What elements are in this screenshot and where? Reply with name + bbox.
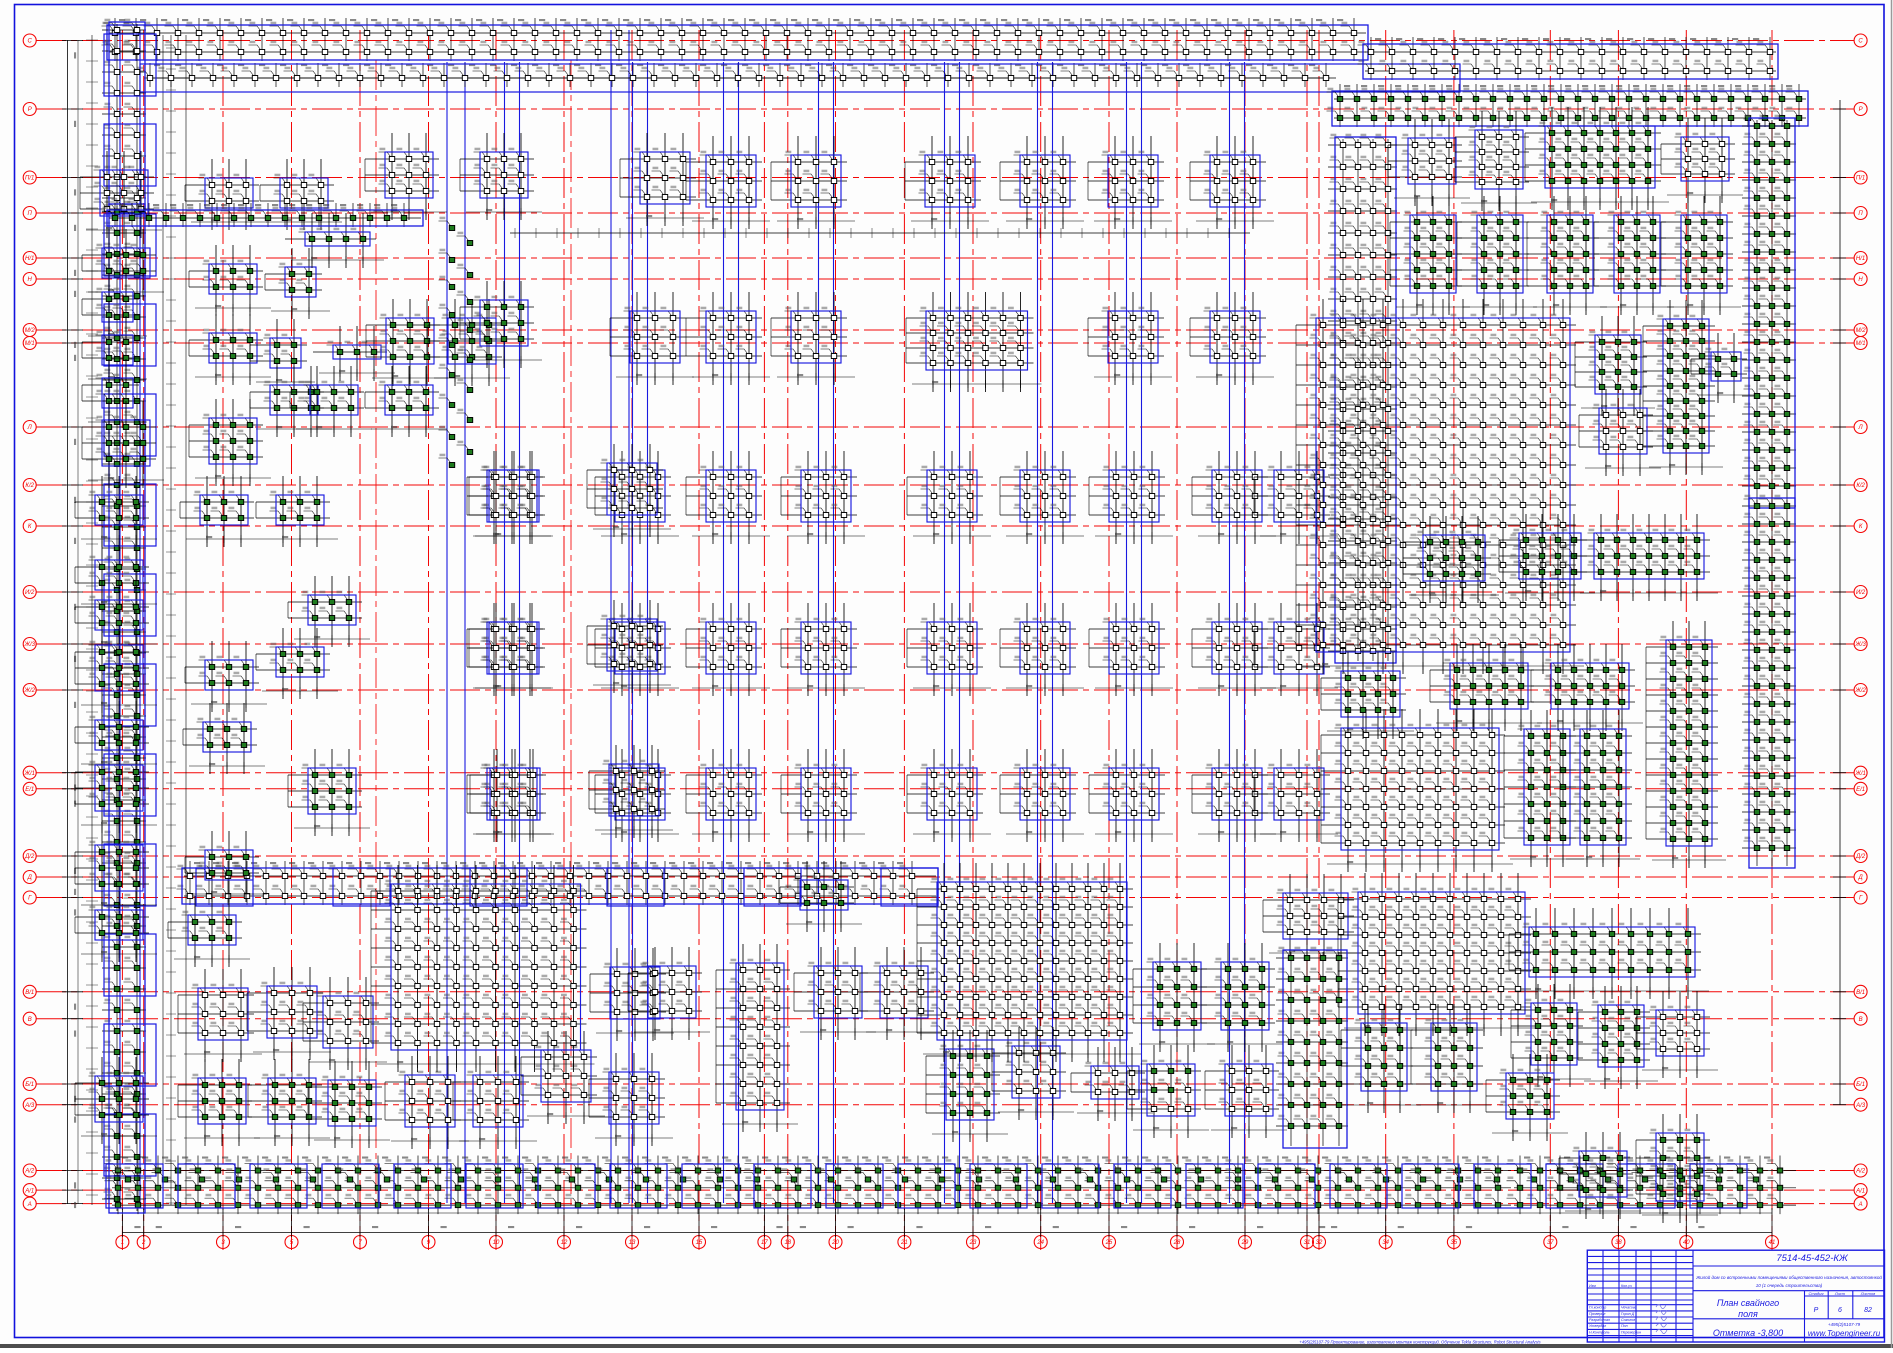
svg-text:6: 6 [1838,1307,1842,1314]
svg-text:Ж/2: Ж/2 [1854,688,1866,694]
svg-text:Д: Д [1857,875,1863,881]
svg-text:Жилой дом со встроенными помещ: Жилой дом со встроенными помещениями общ… [1695,1274,1882,1280]
svg-text:Р: Р [1859,107,1863,113]
svg-text:К/2: К/2 [25,483,34,489]
svg-text:Чечасова: Чечасова [1621,1306,1637,1310]
svg-text:Р: Р [1814,1307,1819,1314]
svg-text:40: 40 [1683,1240,1690,1246]
svg-text:18: 18 [784,1240,791,1246]
svg-text:Горин Д: Горин Д [1621,1312,1635,1316]
svg-text:12: 12 [561,1240,568,1246]
svg-text:Листов: Листов [1860,1291,1876,1296]
svg-text:Стадия: Стадия [1809,1291,1825,1296]
svg-text:Ж/1: Ж/1 [1854,771,1866,777]
svg-text:Отметка -3,800: Отметка -3,800 [1713,1328,1783,1338]
svg-text:Изм: Изм [1589,1284,1596,1288]
svg-text:21: 21 [900,1240,908,1246]
svg-text:В: В [28,1017,32,1023]
svg-text:13: 13 [629,1240,636,1246]
svg-text:25: 25 [1105,1240,1113,1246]
svg-text:+495(2)5107-79: +495(2)5107-79 [1828,1322,1861,1327]
svg-text:Н/1: Н/1 [25,256,34,262]
svg-text:П/1: П/1 [1856,176,1865,182]
svg-text:35: 35 [1451,1240,1458,1246]
svg-text:24: 24 [1036,1240,1044,1246]
svg-text:23: 23 [969,1240,977,1246]
svg-text:поля: поля [1738,1309,1758,1319]
svg-text:А/3: А/3 [1855,1103,1866,1109]
svg-text:7514-45-452-КЖ: 7514-45-452-КЖ [1776,1253,1849,1264]
svg-text:Л: Л [1858,425,1864,431]
svg-text:Д: Д [27,875,33,881]
svg-text:С: С [28,39,33,45]
svg-text:Кол.уч: Кол.уч [1621,1284,1632,1288]
svg-text:А/1: А/1 [1855,1188,1865,1194]
svg-text:17: 17 [761,1240,768,1246]
svg-text:К: К [1859,524,1863,530]
svg-text:Гл.констр: Гл.констр [1589,1306,1606,1310]
svg-text:Н/1: Н/1 [1856,256,1865,262]
svg-text:А: А [1858,1202,1863,1208]
svg-text:Н: Н [1858,277,1863,283]
svg-text:+495(2)5107-79 Проектирование: +495(2)5107-79 Проектирование, изготовле… [1299,1340,1541,1345]
svg-text:38: 38 [1615,1240,1622,1246]
svg-text:Д/2: Д/2 [24,854,35,860]
svg-text:В: В [1859,1017,1863,1023]
svg-text:29: 29 [1241,1240,1249,1246]
svg-text:82: 82 [1864,1307,1872,1314]
svg-text:Утвердил: Утвердил [1589,1324,1606,1328]
svg-text:А/3: А/3 [24,1103,35,1109]
svg-text:28: 28 [1173,1240,1181,1246]
svg-text:План свайного: План свайного [1717,1298,1779,1308]
svg-text:Н.Контроль: Н.Контроль [1589,1330,1610,1334]
svg-text:10 (1 очередь строительства): 10 (1 очередь строительства) [1756,1283,1823,1288]
svg-text:А/1: А/1 [24,1188,34,1194]
svg-text:А: А [27,1202,32,1208]
svg-text:К: К [28,524,32,530]
svg-text:2: 2 [141,1240,146,1246]
svg-text:Ж/3: Ж/3 [1854,642,1866,648]
svg-text:Е/1: Е/1 [25,787,34,793]
svg-text:Лист: Лист [1834,1291,1846,1296]
svg-text:Соколов: Соколов [1621,1318,1635,1322]
svg-text:Б/1: Б/1 [1856,1082,1865,1088]
svg-text:В/1: В/1 [25,990,34,996]
svg-text:Н: Н [28,277,33,283]
svg-text:Е/1: Е/1 [1856,787,1865,793]
svg-text:К/2: К/2 [1856,483,1865,489]
svg-text:10: 10 [493,1240,500,1246]
svg-text:www.Topengineer.ru: www.Topengineer.ru [1808,1329,1881,1338]
svg-text:Разработал: Разработал [1589,1318,1610,1322]
svg-text:А/2: А/2 [1855,1169,1866,1175]
svg-text:31: 31 [1304,1240,1311,1246]
svg-text:П: П [1858,211,1863,217]
svg-text:М/1: М/1 [25,341,35,347]
svg-text:1: 1 [121,1240,124,1246]
svg-text:Д/2: Д/2 [1855,854,1866,860]
svg-text:А/2: А/2 [24,1169,35,1175]
svg-text:Ж/2: Ж/2 [23,688,35,694]
svg-text:М/2: М/2 [25,328,36,334]
svg-text:П/1: П/1 [25,176,34,182]
svg-text:32: 32 [1316,1240,1323,1246]
svg-text:М/2: М/2 [1856,328,1867,334]
svg-text:Б/1: Б/1 [25,1082,34,1088]
svg-text:Р: Р [28,107,32,113]
svg-text:15: 15 [696,1240,703,1246]
svg-text:Ж/3: Ж/3 [23,642,35,648]
svg-text:34: 34 [1382,1240,1389,1246]
svg-text:В/1: В/1 [1856,990,1865,996]
svg-text:Переверзин: Переверзин [1621,1330,1641,1334]
svg-text:П: П [28,211,33,217]
svg-text:Пон: Пон [1621,1324,1628,1328]
svg-text:37: 37 [1547,1240,1554,1246]
svg-text:М/1: М/1 [1856,341,1866,347]
svg-text:20: 20 [831,1240,839,1246]
svg-text:И/2: И/2 [25,590,35,596]
svg-text:Л: Л [27,425,33,431]
svg-text:С: С [1858,39,1863,45]
svg-text:Проверил: Проверил [1589,1312,1605,1316]
svg-text:Ж/1: Ж/1 [23,771,35,777]
svg-text:И/2: И/2 [1856,590,1866,596]
svg-text:41: 41 [1769,1240,1776,1246]
